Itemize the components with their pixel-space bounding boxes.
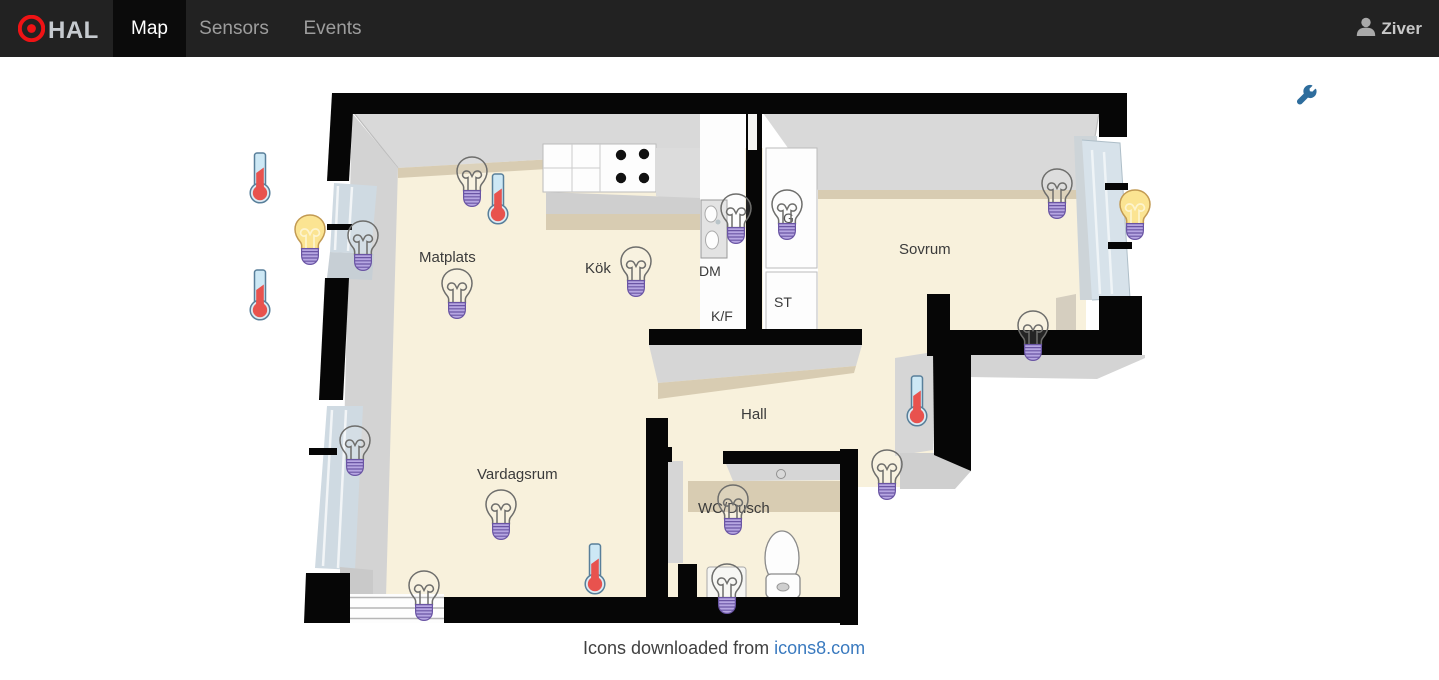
svg-text:Vardagsrum: Vardagsrum [477,466,558,483]
svg-text:Hall: Hall [741,406,767,423]
svg-text:Kök: Kök [585,260,611,277]
svg-text:Sovrum: Sovrum [899,241,951,258]
svg-text:DM: DM [699,263,721,279]
svg-text:Matplats: Matplats [419,249,476,266]
svg-text:K/F: K/F [711,308,733,324]
svg-text:Icons downloaded from icons8.c: Icons downloaded from icons8.com [583,638,865,658]
svg-text:ST: ST [774,294,792,310]
